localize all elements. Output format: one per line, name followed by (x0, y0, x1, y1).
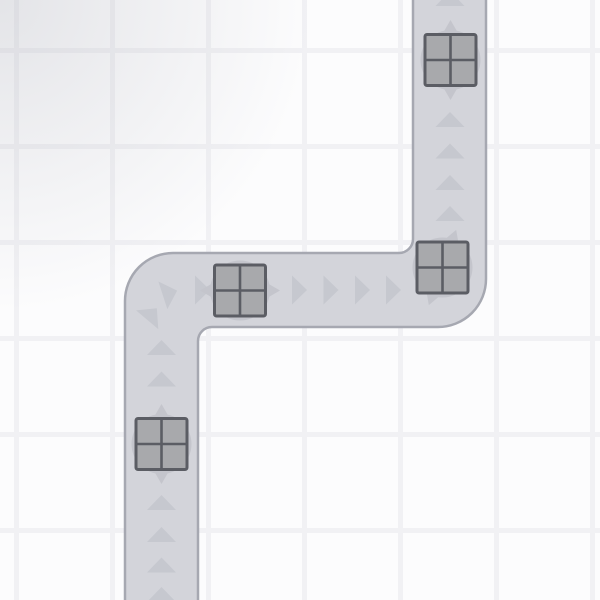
road-scene (0, 0, 600, 600)
game-viewport (0, 0, 600, 600)
